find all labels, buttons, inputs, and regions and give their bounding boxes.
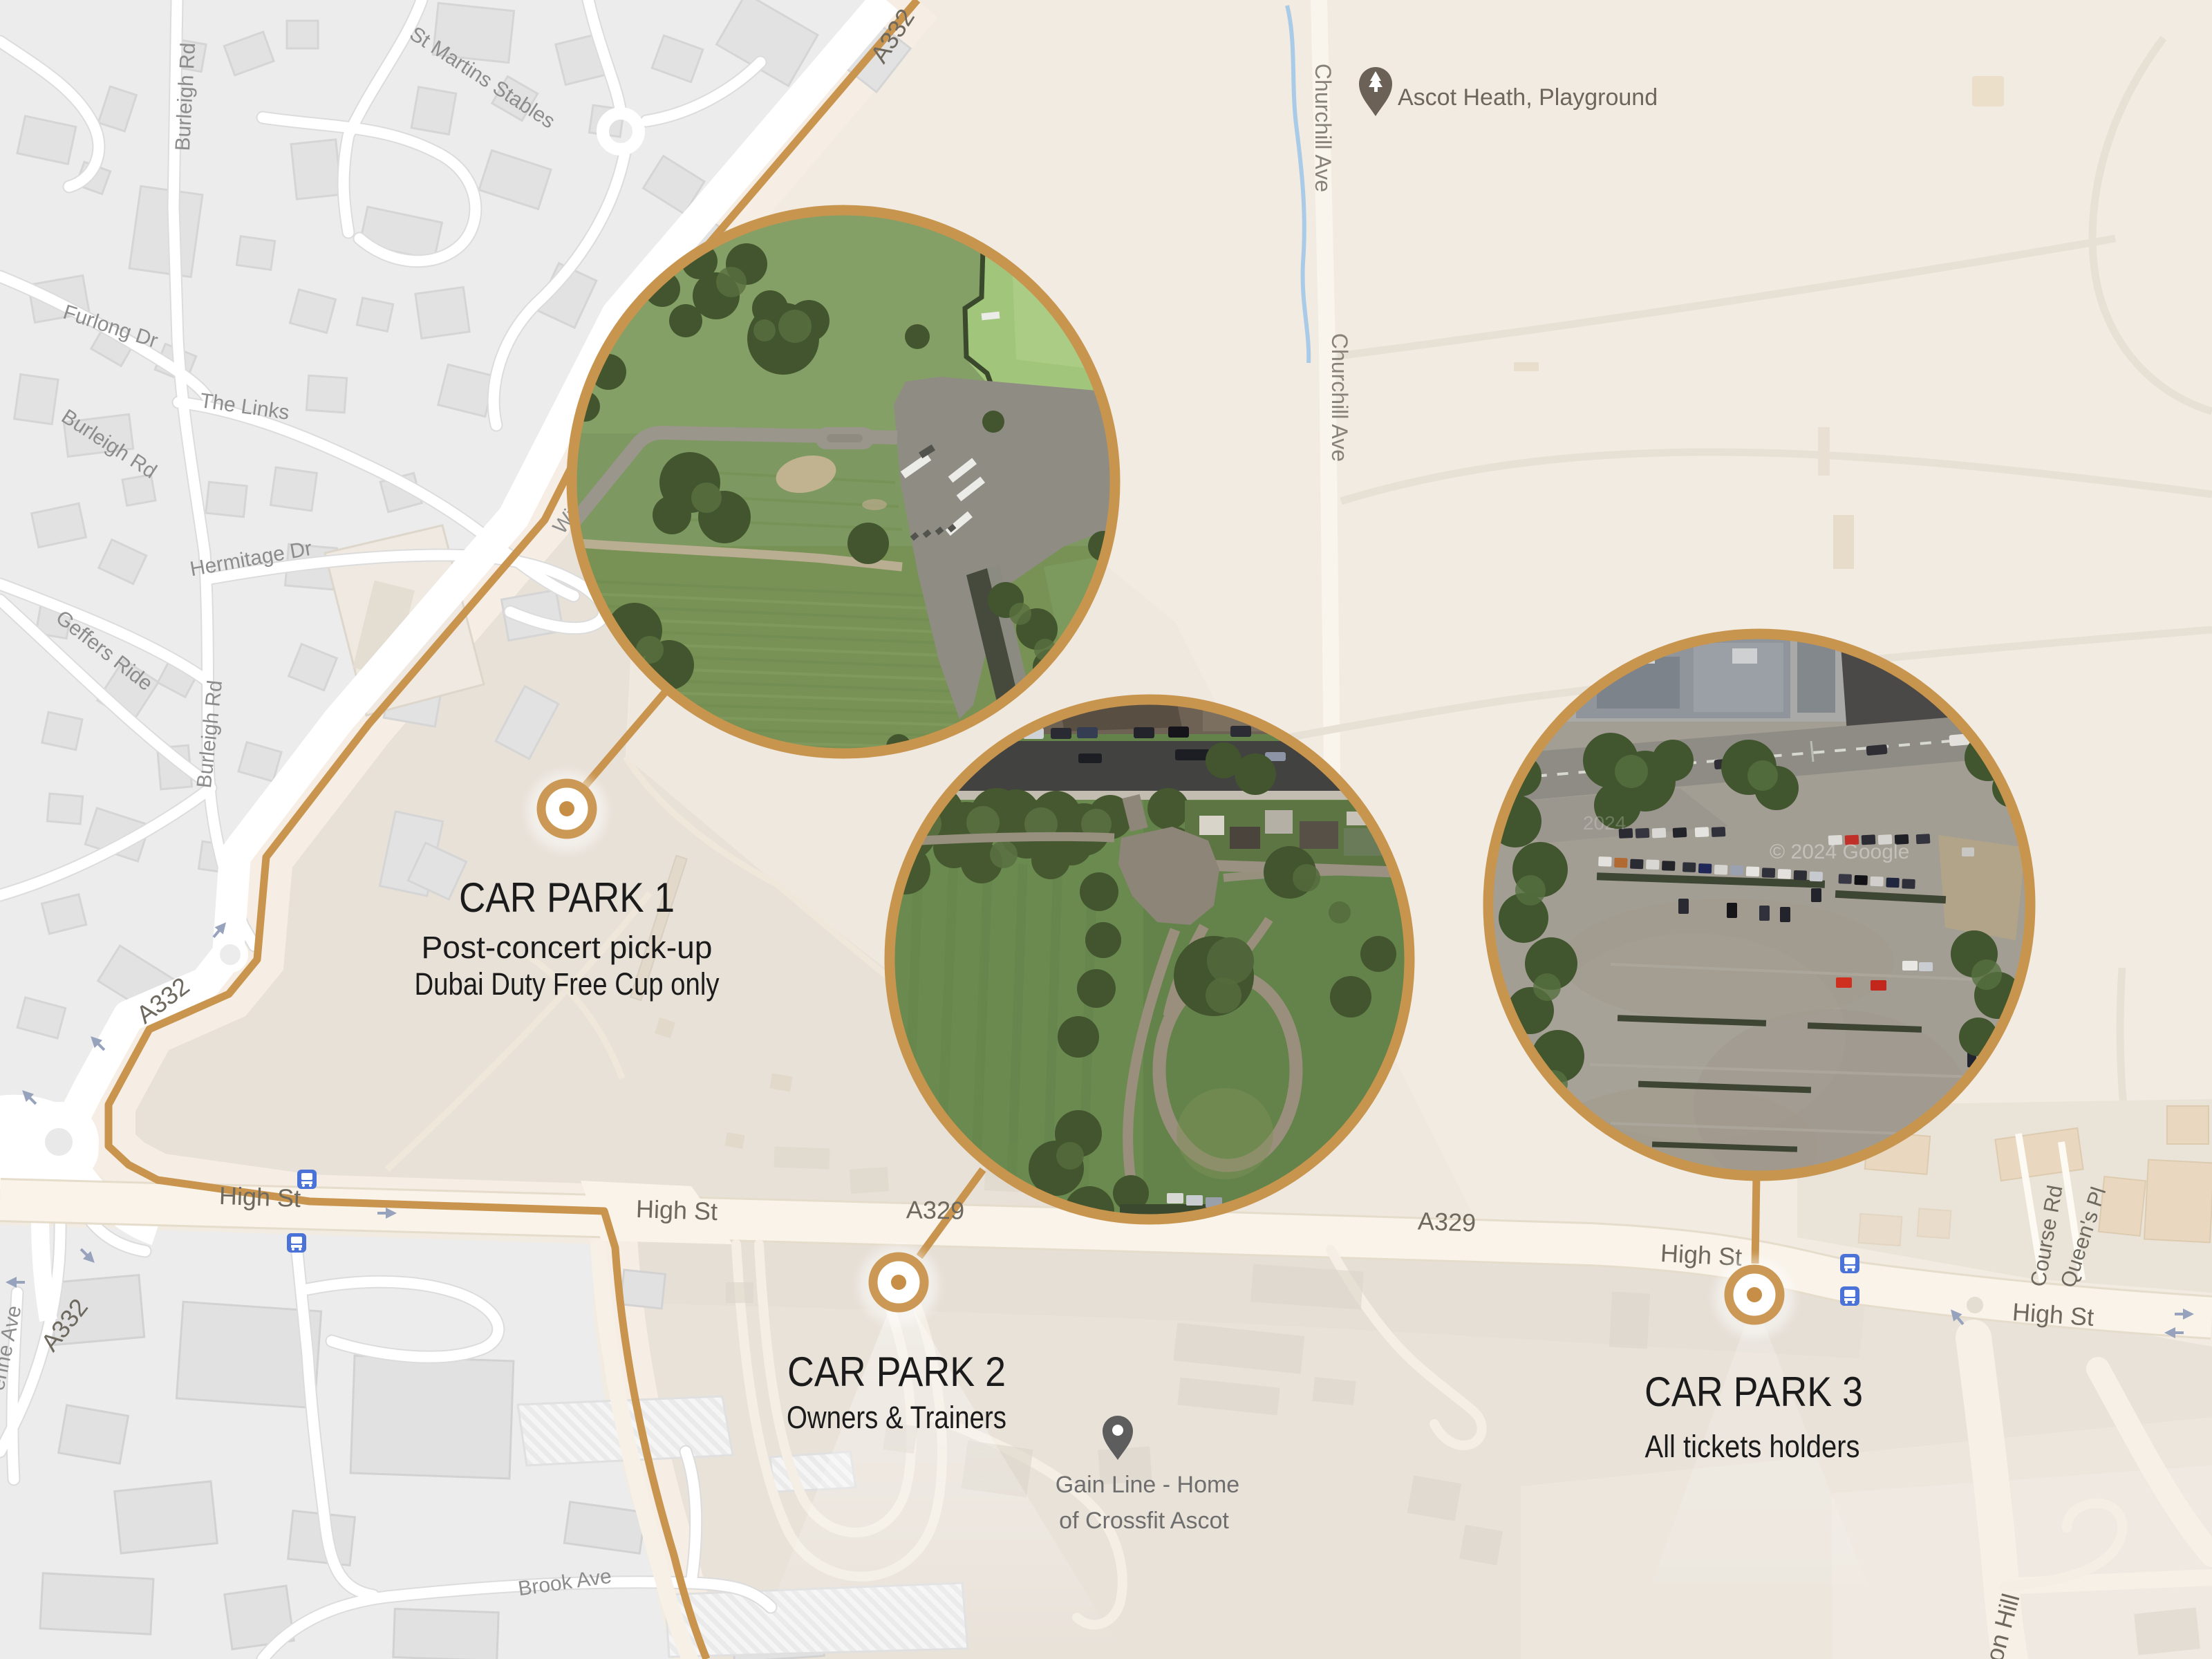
svg-text:of Crossfit Ascot: of Crossfit Ascot: [1059, 1508, 1229, 1534]
svg-text:Gain Line - Home: Gain Line - Home: [1056, 1472, 1239, 1498]
svg-text:2024: 2024: [1583, 812, 1626, 834]
svg-text:High St: High St: [218, 1181, 301, 1212]
svg-text:CAR PARK 3: CAR PARK 3: [1644, 1369, 1863, 1415]
svg-text:A329: A329: [1417, 1207, 1476, 1237]
svg-text:Dubai Duty Free Cup only: Dubai Duty Free Cup only: [415, 966, 720, 1002]
svg-text:Churchill Ave: Churchill Ave: [1311, 64, 1335, 192]
svg-text:Churchill Ave: Churchill Ave: [1327, 333, 1352, 462]
svg-text:A329: A329: [906, 1195, 965, 1224]
svg-text:© 2024 Google: © 2024 Google: [1770, 841, 1909, 863]
svg-text:High St: High St: [635, 1194, 718, 1226]
svg-text:Owners & Trainers: Owners & Trainers: [787, 1400, 1006, 1435]
svg-text:All tickets holders: All tickets holders: [1645, 1429, 1860, 1464]
svg-text:Post-concert pick-up: Post-concert pick-up: [422, 930, 713, 965]
svg-text:CAR PARK 1: CAR PARK 1: [459, 874, 675, 921]
svg-text:Ascot Heath, Playground: Ascot Heath, Playground: [1398, 84, 1658, 111]
svg-text:High St: High St: [2012, 1297, 2095, 1331]
svg-text:CAR PARK 2: CAR PARK 2: [787, 1349, 1006, 1395]
